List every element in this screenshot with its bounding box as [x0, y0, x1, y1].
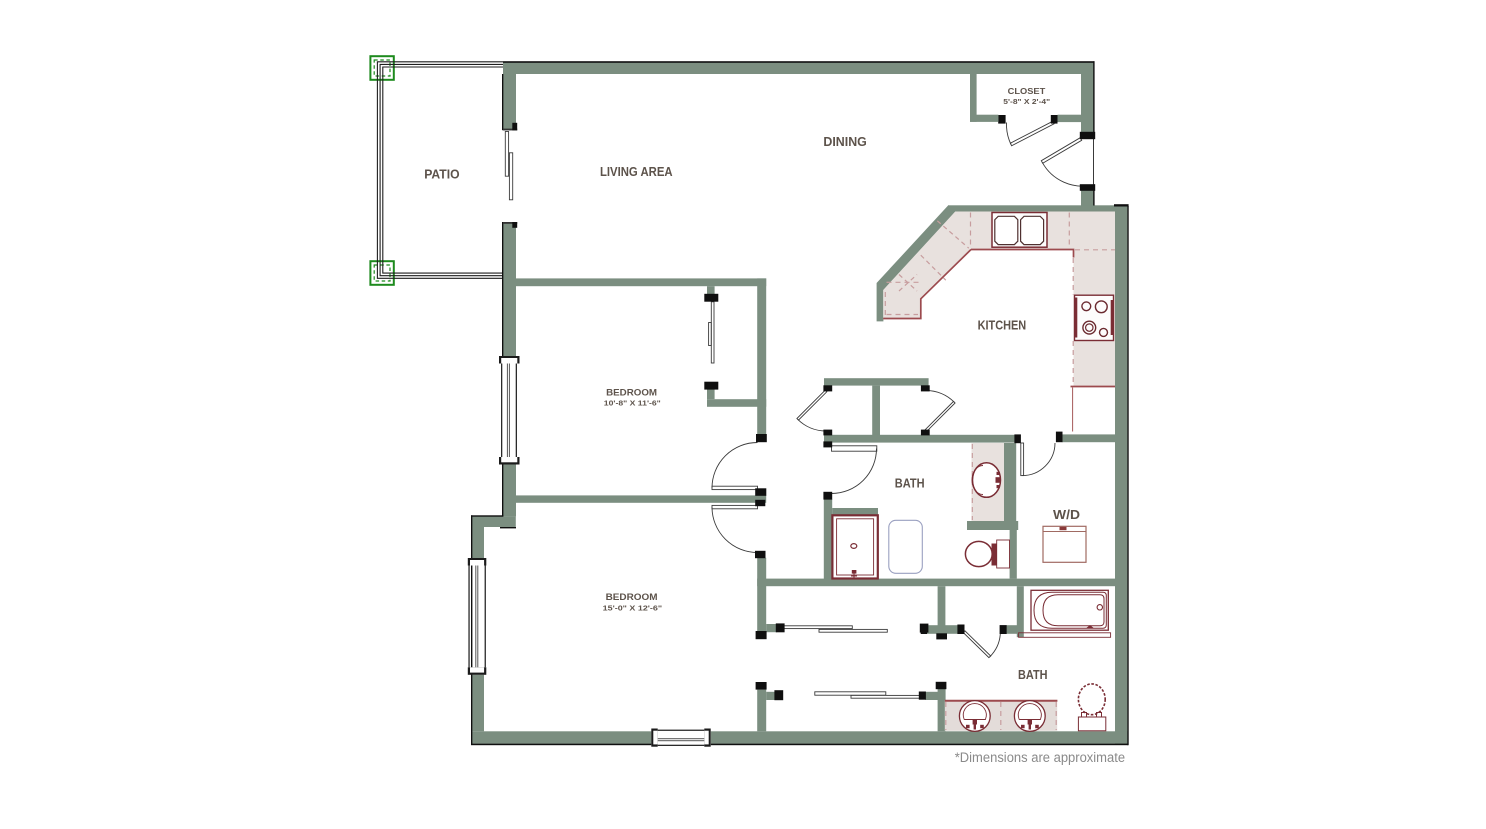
svg-text:PATIO: PATIO: [424, 167, 460, 181]
svg-text:10'-8" X 11'-6": 10'-8" X 11'-6": [604, 398, 661, 407]
svg-text:*Dimensions are approximate: *Dimensions are approximate: [955, 750, 1125, 765]
svg-text:LIVING AREA: LIVING AREA: [600, 165, 673, 179]
svg-text:15'-0" X 12'-6": 15'-0" X 12'-6": [603, 604, 663, 613]
svg-text:BATH: BATH: [1018, 667, 1048, 682]
svg-text:BEDROOM: BEDROOM: [606, 592, 658, 603]
svg-text:CLOSET: CLOSET: [1008, 86, 1046, 96]
svg-text:BATH: BATH: [895, 476, 925, 491]
svg-text:W/D: W/D: [1053, 508, 1080, 522]
svg-text:KITCHEN: KITCHEN: [978, 317, 1027, 332]
svg-text:BEDROOM: BEDROOM: [606, 388, 657, 399]
svg-text:DINING: DINING: [823, 135, 866, 149]
svg-text:5'-8" X 2'-4": 5'-8" X 2'-4": [1003, 97, 1050, 106]
